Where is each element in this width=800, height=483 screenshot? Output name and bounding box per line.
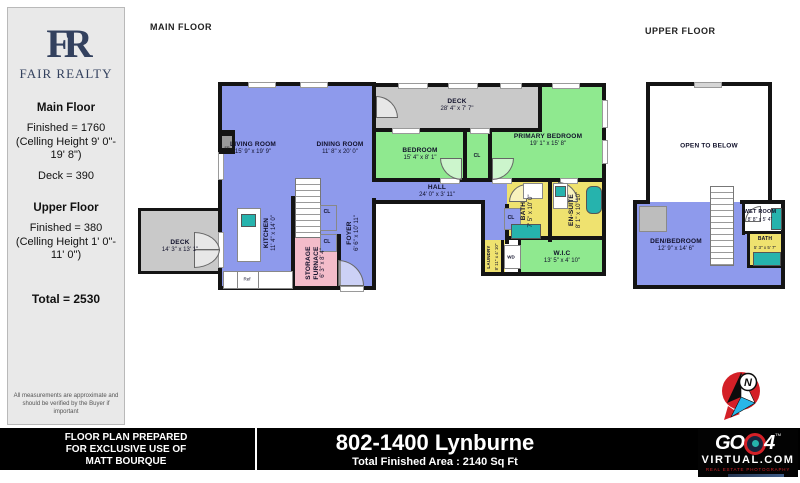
room-name: DEN/BEDROOM xyxy=(650,238,702,246)
trademark-symbol: TM xyxy=(775,432,781,437)
closet-foyer-label-1: CL xyxy=(324,209,331,215)
living-room-label: LIVING ROOM 15' 9" x 19' 9" xyxy=(230,141,276,156)
room-name: WET ROOM xyxy=(744,209,776,217)
washer-dryer-label: WD xyxy=(507,255,515,260)
wall xyxy=(481,272,606,276)
footer-bar: FLOOR PLAN PREPARED FOR EXCLUSIVE USE OF… xyxy=(0,428,800,470)
wall xyxy=(633,285,785,289)
primary-bedroom-floor-upper xyxy=(540,87,603,132)
logo-four-text: 4 xyxy=(764,432,774,455)
ensuite-label: EN-SUITE 8' 1" x 10' 10" xyxy=(568,192,583,228)
room-dims: 8' 8" x 5' 4" xyxy=(744,216,776,223)
info-sidebar: FR FAIR REALTY Main Floor Finished = 176… xyxy=(7,7,125,425)
wall xyxy=(463,128,467,182)
wall xyxy=(747,234,750,267)
room-name: W.I.C xyxy=(544,250,580,258)
room-dims: 6' 6" x 10' 11" xyxy=(353,215,360,251)
stairs-upper xyxy=(710,186,734,266)
room-dims: 6' 3" x 8' 4" xyxy=(320,246,327,279)
property-address: 802-1400 Lynburne xyxy=(270,430,600,456)
fridge-label: Ref xyxy=(243,277,250,282)
wall xyxy=(372,198,376,290)
laundry-label: LAUNDRY 8' 11" x 4' 10" xyxy=(485,244,500,271)
room-dims: 8' 1" x 10' 10" xyxy=(575,192,582,228)
sidebar-main-ceiling: (Celling Height 9' 0"- 19' 8") xyxy=(8,136,124,162)
room-name: FOYER xyxy=(346,215,354,251)
kitchen-label: KITCHEN 11' 4" x 14' 0" xyxy=(263,215,278,251)
stairs-main xyxy=(295,178,321,238)
wall xyxy=(633,200,650,204)
logo-go-text: GO xyxy=(715,432,744,455)
deck-wall xyxy=(138,208,222,211)
room-name: BATH xyxy=(754,236,776,244)
room-name: LIVING ROOM xyxy=(230,141,276,149)
window xyxy=(470,128,490,134)
room-dims: 5' 3" x 5' 7" xyxy=(754,243,776,250)
camera-lens-icon xyxy=(744,433,766,455)
sidebar-deck-area: Deck = 390 xyxy=(8,170,124,182)
room-dims: 15' 4" x 8' 1" xyxy=(402,154,437,161)
go4-wordmark: GO 4 TM xyxy=(698,432,798,455)
storage-furnace-label: STORAGE FURNACE 6' 3" x 8' 4" xyxy=(305,246,327,279)
wall xyxy=(372,200,485,204)
room-name: PRIMARY BEDROOM xyxy=(514,133,582,141)
deck-wall xyxy=(138,208,141,274)
bath-label: BATH 7' 5" x 10' 0" xyxy=(520,195,535,228)
den-bedroom-label: DEN/BEDROOM 12' 9" x 14' 6" xyxy=(650,238,702,253)
foyer-label: FOYER 6' 6" x 10' 11" xyxy=(346,215,361,251)
sidebar-disclaimer: All measurements are approximate and sho… xyxy=(12,392,120,416)
room-name: DINING ROOM xyxy=(317,141,364,149)
north-compass-icon: N xyxy=(718,370,764,422)
window xyxy=(392,128,420,134)
bedroom-label: BEDROOM 15' 4" x 8' 1" xyxy=(402,147,437,162)
upper-bath-tub xyxy=(753,252,781,266)
sidebar-main-floor-title: Main Floor xyxy=(8,102,124,114)
window xyxy=(300,82,328,88)
go4virtual-logo: GO 4 TM VIRTUAL.COM REAL ESTATE PHOTOGRA… xyxy=(698,429,798,477)
room-dims: 14' 3" x 13' 1" xyxy=(162,246,198,253)
window xyxy=(448,83,478,89)
main-floor-heading: MAIN FLOOR xyxy=(150,22,212,32)
room-dims: 8' 11" x 4' 10" xyxy=(492,244,499,271)
lens-iris xyxy=(752,440,759,447)
top-deck-label: DECK 28' 4" x 7' 7" xyxy=(441,98,474,113)
logo-site-text: VIRTUAL.COM xyxy=(698,454,798,466)
kitchen-sink xyxy=(241,214,256,227)
total-finished-area: Total Finished Area : 2140 Sq Ft xyxy=(270,456,600,468)
logo-contact-line xyxy=(728,474,784,477)
sidebar-upper-ceiling: (Celling Height 1' 0"- 11' 0") xyxy=(8,236,124,262)
upper-closet xyxy=(639,206,667,232)
window xyxy=(248,82,276,88)
room-dims: 13' 5" x 4' 10" xyxy=(544,257,580,264)
window xyxy=(218,152,224,180)
window xyxy=(552,83,580,89)
wall xyxy=(218,82,376,86)
dining-room-label: DINING ROOM 11' 8" x 20' 0" xyxy=(317,141,364,156)
open-to-below-label: OPEN TO BELOW xyxy=(680,142,738,150)
left-deck-label: DECK 14' 3" x 13' 1" xyxy=(162,239,198,254)
room-name: DECK xyxy=(162,239,198,247)
sidebar-main-finished: Finished = 1760 xyxy=(8,122,124,134)
logo-tagline-text: REAL ESTATE PHOTOGRAPHY xyxy=(698,467,798,472)
wic-label: W.I.C 13' 5" x 4' 10" xyxy=(544,250,580,265)
ensuite-tub xyxy=(586,186,602,214)
closet-hall-label: CL xyxy=(508,215,515,221)
primary-bedroom-label: PRIMARY BEDROOM 19' 1" x 15' 8" xyxy=(514,133,582,148)
prepared-for-text: FLOOR PLAN PREPARED FOR EXCLUSIVE USE OF… xyxy=(8,432,244,468)
svg-text:N: N xyxy=(744,377,753,389)
room-name: BEDROOM xyxy=(402,147,437,155)
room-name: HALL xyxy=(419,184,455,192)
closet-mid-label: CL xyxy=(474,153,481,159)
room-name: OPEN TO BELOW xyxy=(680,142,738,150)
room-name: LAUNDRY xyxy=(485,244,493,271)
fair-realty-monogram-logo: FR xyxy=(8,24,124,64)
room-name: KITCHEN xyxy=(263,215,271,251)
room-name: BATH xyxy=(520,195,528,228)
deck-wall xyxy=(138,271,222,274)
window xyxy=(602,100,608,128)
hall-label: HALL 24' 0" x 3' 11" xyxy=(419,184,455,199)
sidebar-total-area: Total = 2530 xyxy=(8,292,124,306)
footer-divider xyxy=(255,428,257,470)
window xyxy=(500,83,522,89)
room-dims: 15' 9" x 19' 9" xyxy=(230,148,276,155)
floor-plan-page: FR FAIR REALTY Main Floor Finished = 176… xyxy=(0,0,800,483)
window xyxy=(694,82,722,88)
wall xyxy=(646,82,650,204)
wall xyxy=(768,82,772,204)
wall xyxy=(633,200,637,289)
room-name: EN-SUITE xyxy=(568,192,576,228)
room-name: STORAGE FURNACE xyxy=(305,246,320,279)
wall xyxy=(548,178,552,242)
window xyxy=(602,140,608,164)
room-dims: 24' 0" x 3' 11" xyxy=(419,191,455,198)
room-dims: 11' 4" x 14' 0" xyxy=(270,215,277,251)
room-dims: 28' 4" x 7' 7" xyxy=(441,105,474,112)
room-dims: 7' 5" x 10' 0" xyxy=(527,195,534,228)
closet-foyer-label-2: CL xyxy=(324,239,331,245)
room-name: DECK xyxy=(441,98,474,106)
entry-door-opening xyxy=(340,286,364,292)
upper-bath-label: BATH 5' 3" x 5' 7" xyxy=(754,236,776,251)
deck-wall xyxy=(538,83,542,132)
room-dims: 11' 8" x 20' 0" xyxy=(317,148,364,155)
window xyxy=(398,83,428,89)
fair-realty-wordmark: FAIR REALTY xyxy=(8,66,124,82)
upper-floor-heading: UPPER FLOOR xyxy=(645,26,716,36)
ensuite-sink xyxy=(555,186,566,197)
room-dims: 12' 9" x 14' 6" xyxy=(650,245,702,252)
fireplace-label: FP xyxy=(224,145,229,150)
sidebar-upper-finished: Finished = 380 xyxy=(8,222,124,234)
room-dims: 19' 1" x 15' 8" xyxy=(514,140,582,147)
sidebar-upper-floor-title: Upper Floor xyxy=(8,202,124,214)
wet-room-label: WET ROOM 8' 8" x 5' 4" xyxy=(744,209,776,224)
